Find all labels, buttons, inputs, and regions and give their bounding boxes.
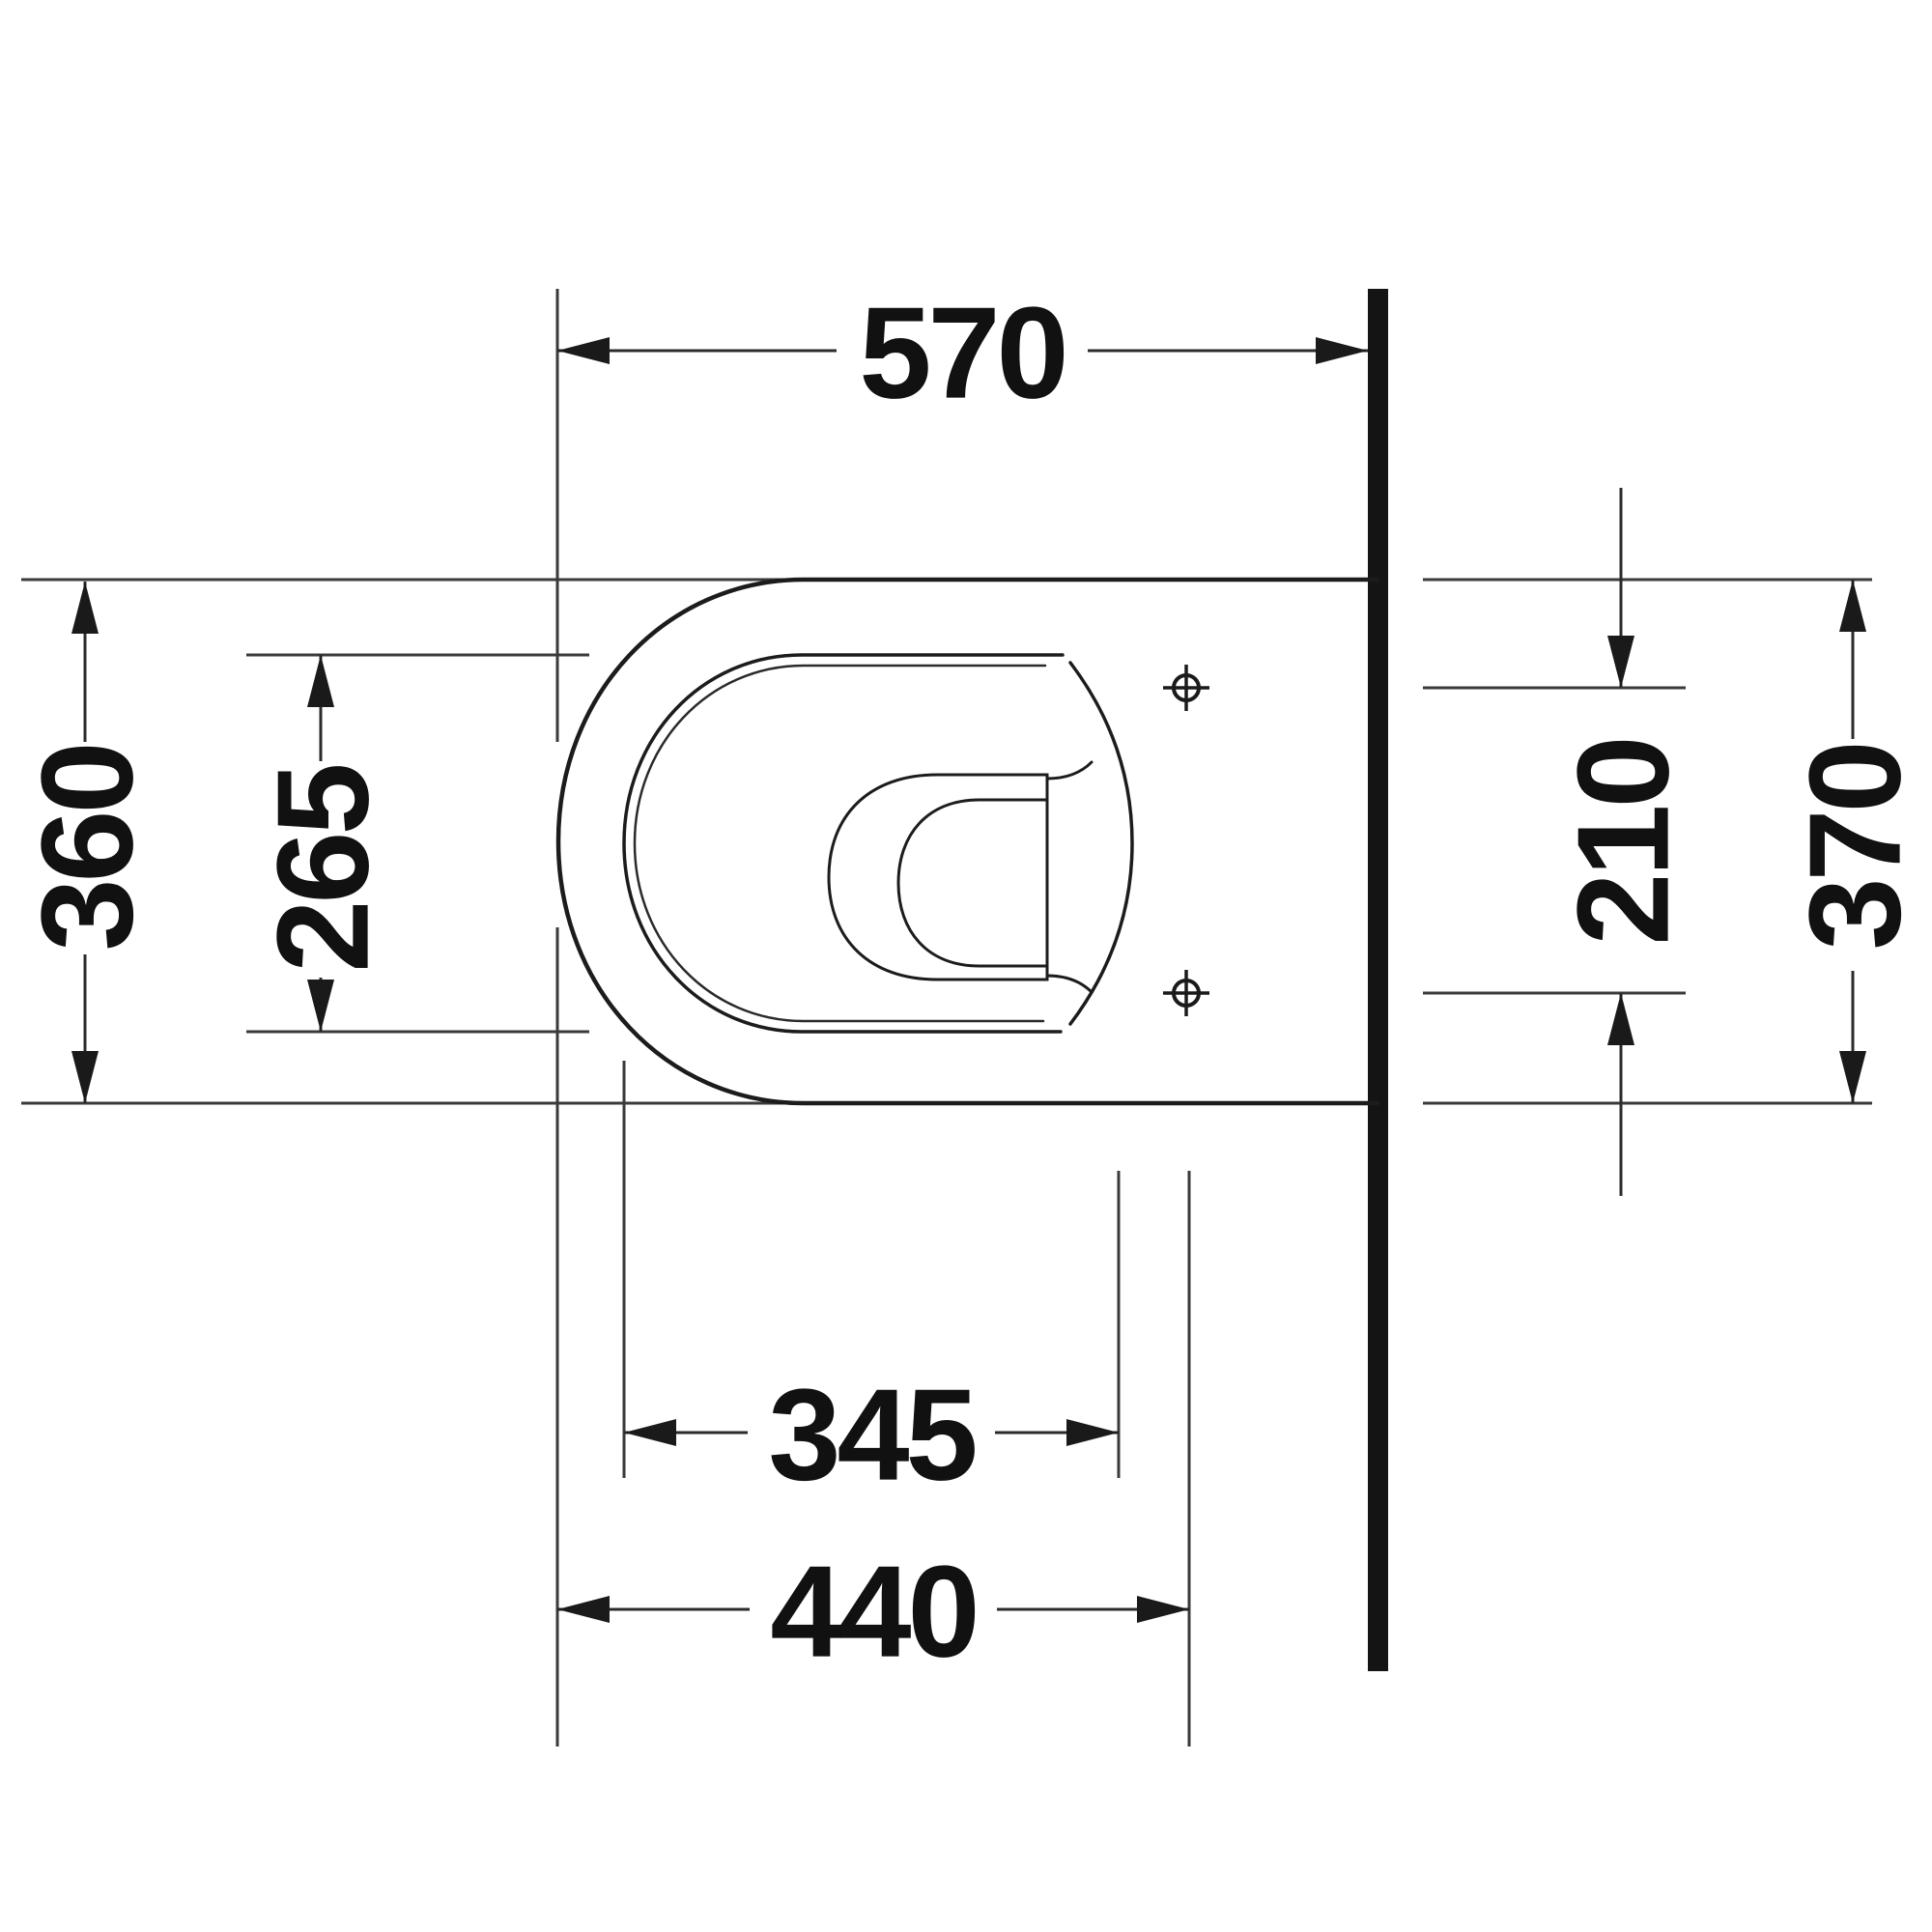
dimension-360: 360 <box>14 582 160 1103</box>
arrow-up-icon <box>1839 580 1866 632</box>
arrow-up-icon <box>307 655 334 707</box>
dimension-265: 265 <box>250 655 396 1032</box>
drain-outline <box>898 800 1047 966</box>
wall-section <box>1368 289 1388 1671</box>
arrow-left-icon <box>624 1419 676 1446</box>
ceramic-step-top <box>1047 762 1092 779</box>
dim-label-370: 370 <box>1782 744 1928 950</box>
toilet-outer-outline <box>558 580 1378 1103</box>
arrow-up-icon <box>1607 993 1634 1045</box>
inner-bowl-opening <box>829 775 1047 980</box>
arrow-right-icon <box>1066 1419 1119 1446</box>
wall-bar <box>1368 289 1388 1671</box>
dimension-345: 345 <box>624 1362 1119 1508</box>
arrow-down-icon <box>1839 1051 1866 1103</box>
dimension-440: 440 <box>557 1539 1189 1685</box>
dim-label-440: 440 <box>770 1539 976 1685</box>
seat-inner-line <box>635 666 1045 1021</box>
arrow-down-icon <box>307 980 334 1032</box>
fixing-hole-top <box>1163 665 1209 711</box>
arrow-right-icon <box>1316 337 1368 364</box>
fixing-hole-bottom <box>1163 970 1209 1016</box>
extension-lines <box>21 289 1872 1747</box>
inner-bowl <box>829 762 1092 992</box>
dim-label-210: 210 <box>1550 739 1696 945</box>
technical-drawing-page: 570 360 265 210 <box>0 0 1932 1932</box>
ceramic-step-bottom <box>1047 976 1092 992</box>
dim-label-360: 360 <box>14 745 160 951</box>
arrow-down-icon <box>71 1051 99 1103</box>
bowl-outer-shape <box>558 580 1378 1103</box>
dimension-210: 210 <box>1550 488 1696 1196</box>
dim-label-345: 345 <box>768 1362 975 1508</box>
arrow-left-icon <box>557 337 610 364</box>
dim-label-570: 570 <box>859 280 1065 426</box>
dim-label-265: 265 <box>250 765 396 972</box>
dimension-570: 570 <box>557 280 1368 426</box>
arrow-left-icon <box>557 1596 610 1623</box>
dimension-370: 370 <box>1782 580 1928 1103</box>
arrow-up-icon <box>71 582 99 634</box>
arrow-right-icon <box>1137 1596 1189 1623</box>
toilet-top-view-drawing: 570 360 265 210 <box>0 0 1932 1932</box>
arrow-down-icon <box>1607 636 1634 688</box>
seat-right-arc <box>1070 663 1132 1024</box>
